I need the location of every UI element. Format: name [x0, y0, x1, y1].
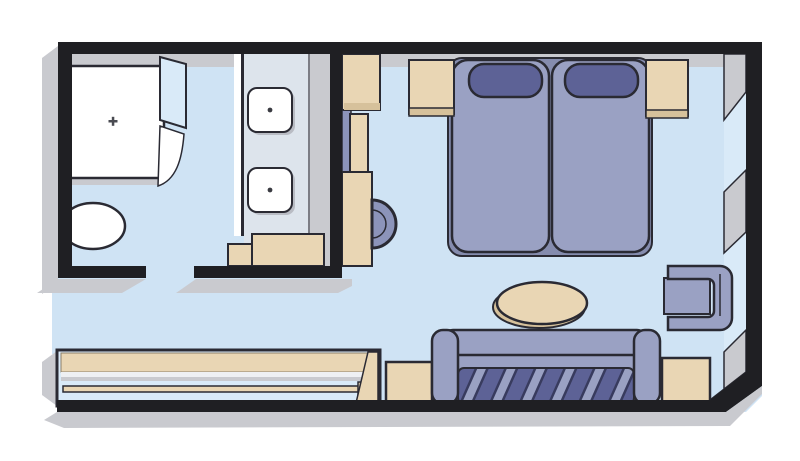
- wall-divider: [330, 42, 342, 278]
- wardrobe-shade: [344, 103, 380, 110]
- bed: [448, 58, 652, 256]
- nook-partition: [241, 54, 244, 236]
- pillow-right: [565, 64, 638, 97]
- sofa-back: [444, 330, 646, 355]
- armchair: [664, 266, 732, 330]
- nightstand-top: [646, 60, 688, 116]
- pillow-left: [469, 64, 542, 97]
- sofa-arm-left: [432, 330, 458, 404]
- armchair-seat: [664, 278, 710, 314]
- dressing-desk: [342, 172, 372, 266]
- table-top: [497, 282, 587, 324]
- closet-rod: [63, 386, 363, 392]
- sofa-cushions: [458, 368, 634, 404]
- wall-bathroom-bottom: [58, 266, 146, 278]
- wall-top: [58, 42, 762, 54]
- under-sink-cabinet: [252, 234, 324, 266]
- sofa-arm-right: [634, 330, 660, 404]
- closet-unit: [42, 350, 380, 406]
- side-table-right: [662, 358, 710, 404]
- sink-drain: [268, 108, 273, 113]
- nightstand-top: [409, 60, 454, 114]
- closet-shadow-line: [61, 377, 377, 381]
- under-sink-cabinet-step: [228, 244, 252, 266]
- closet-highlight: [61, 372, 377, 377]
- wall-vanity-bottom: [194, 266, 342, 278]
- oval-table: [493, 282, 587, 328]
- side-table-left: [386, 362, 432, 404]
- floor-plan: [0, 0, 800, 461]
- shower-drain: [112, 117, 115, 126]
- closet-end-face: [42, 351, 57, 406]
- floor-plan-drawing: [0, 0, 800, 461]
- wardrobe: [342, 54, 380, 110]
- nightstand-shade: [646, 110, 688, 118]
- nook-partition-face: [234, 54, 241, 236]
- sofa: [432, 330, 660, 404]
- closet-top-shelf: [61, 353, 377, 372]
- shower: [66, 66, 164, 185]
- wall-right: [746, 42, 762, 374]
- wall-left-extrusion: [42, 46, 58, 294]
- vanity-nook: [228, 54, 330, 266]
- wardrobe-shelf: [350, 114, 368, 172]
- sink-bottom: [248, 168, 295, 215]
- sink-top: [248, 88, 295, 135]
- nightstand-shade: [409, 108, 454, 116]
- nightstand-left: [409, 60, 454, 116]
- wall-left: [58, 42, 72, 278]
- sink-drain: [268, 188, 273, 193]
- vanity-wall-extrusion: [176, 279, 352, 293]
- shower-glass-door: [160, 57, 186, 128]
- nightstand-right: [646, 60, 688, 118]
